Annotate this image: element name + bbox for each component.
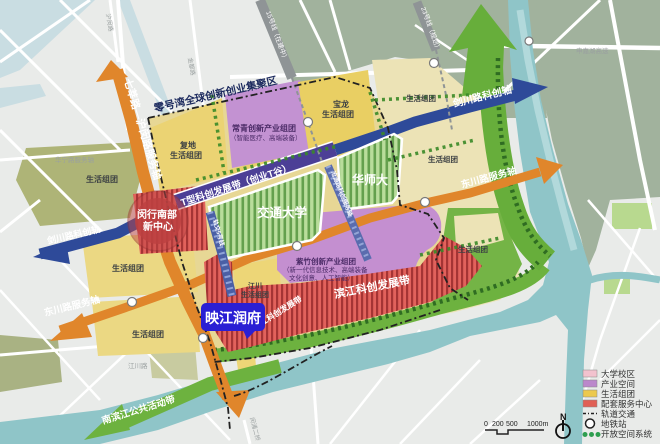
svg-text:（新一代信息技术、高端装备: （新一代信息技术、高端装备 [283, 265, 368, 274]
svg-text:生活组团: 生活组团 [132, 329, 164, 339]
svg-text:500: 500 [506, 421, 518, 428]
svg-text:华宁路服务轴: 华宁路服务轴 [55, 155, 95, 164]
svg-text:地铁站: 地铁站 [601, 419, 627, 429]
svg-text:映江润府: 映江润府 [205, 310, 261, 326]
svg-text:0: 0 [484, 421, 488, 428]
svg-text:1000m: 1000m [527, 421, 549, 428]
svg-text:新中心: 新中心 [143, 220, 173, 233]
svg-text:生活组团: 生活组团 [170, 150, 202, 160]
svg-text:紫竹创新产业组团: 紫竹创新产业组团 [296, 256, 356, 266]
svg-text:生活组团: 生活组团 [86, 174, 118, 184]
svg-text:配套服务中心: 配套服务中心 [601, 399, 653, 409]
svg-text:开放空间系统: 开放空间系统 [601, 429, 653, 439]
svg-text:生活组团: 生活组团 [112, 263, 144, 273]
svg-text:宝龙: 宝龙 [333, 99, 349, 109]
svg-text:大学校区: 大学校区 [601, 369, 636, 379]
svg-text:复地: 复地 [179, 140, 196, 150]
svg-text:轨道交通: 轨道交通 [601, 409, 636, 419]
svg-text:华师大: 华师大 [352, 172, 388, 187]
svg-text:生活组团: 生活组团 [601, 389, 635, 399]
svg-text:申嘉湖高速: 申嘉湖高速 [576, 46, 609, 55]
svg-text:江川路: 江川路 [128, 361, 148, 370]
svg-text:产业空间: 产业空间 [601, 379, 635, 389]
svg-text:生活组团: 生活组团 [406, 93, 436, 103]
svg-text:生活组团: 生活组团 [458, 244, 488, 254]
svg-text:文化创意、人工智能）: 文化创意、人工智能） [289, 273, 354, 282]
svg-text:生活组团: 生活组团 [241, 290, 269, 299]
svg-text:江川: 江川 [248, 281, 262, 290]
svg-text:生活组团: 生活组团 [322, 109, 354, 119]
svg-text:200: 200 [492, 421, 504, 428]
svg-text:交通大学: 交通大学 [257, 205, 308, 220]
svg-text:生活组团: 生活组团 [428, 154, 458, 164]
svg-text:（智能医疗、高端装备）: （智能医疗、高端装备） [230, 133, 302, 142]
svg-text:常青创新产业组团: 常青创新产业组团 [232, 123, 296, 133]
svg-text:闵行南部: 闵行南部 [137, 208, 177, 221]
